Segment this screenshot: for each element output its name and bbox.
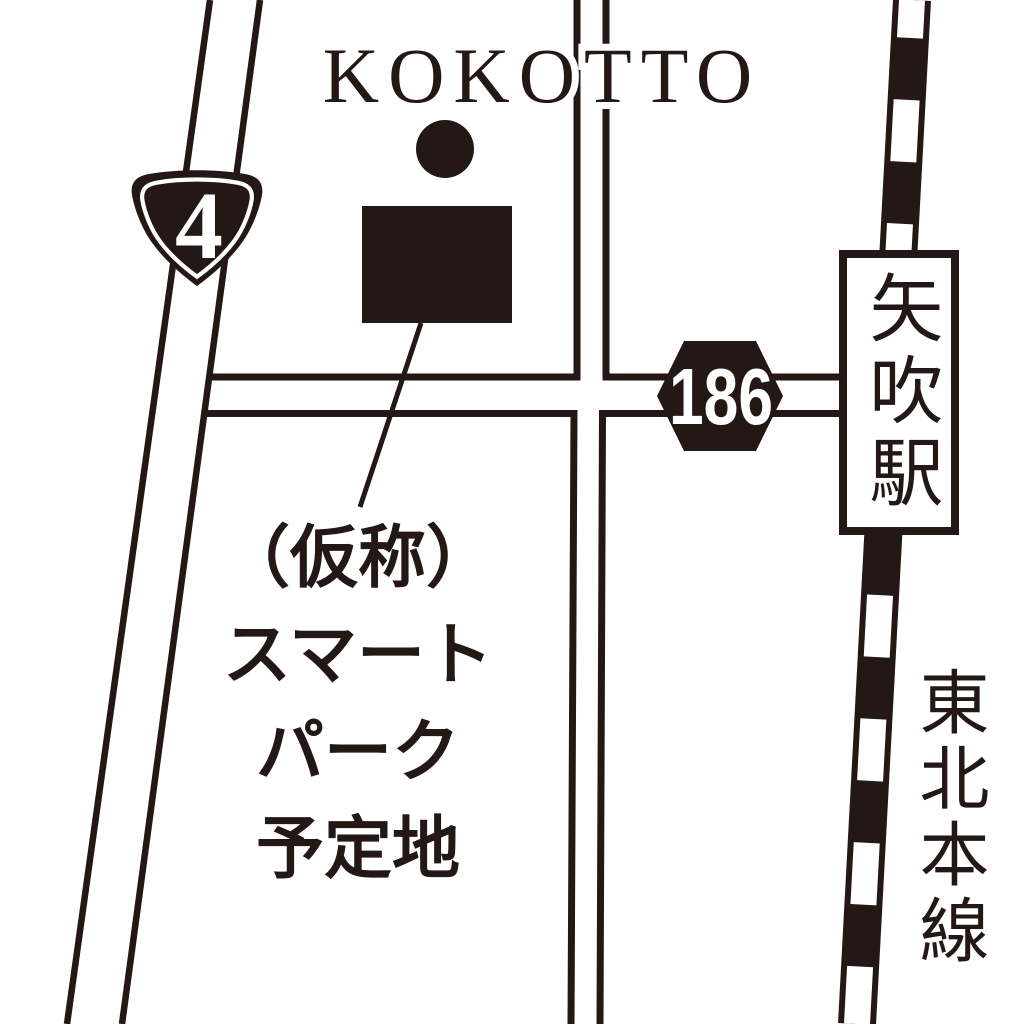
site-building-icon [362,206,512,323]
access-map: 4 186 KOKOTTO KOKOTTO 矢吹駅 東北本線 （仮称） スマート… [0,0,1024,1024]
site-label-line-3: パーク [158,704,558,801]
site-marker [362,120,512,323]
site-label: （仮称） スマート パーク 予定地 [158,510,558,898]
street-corner-bottom-right [600,414,847,1024]
route4-shield-icon: 4 [132,170,263,286]
station-name-label: 矢吹駅 [843,260,955,526]
route4-number: 4 [175,172,223,279]
route186-badge-icon: 186 [657,341,783,451]
route186-number: 186 [669,353,773,442]
site-label-line-2: スマート [158,607,558,704]
site-label-line-4: 予定地 [158,801,558,898]
site-label-line-1: （仮称） [158,510,558,607]
site-dot-icon [416,120,474,178]
kokotto-label: KOKOTTO [192,37,892,115]
rail-line-name-label: 東北本線 [906,666,982,970]
